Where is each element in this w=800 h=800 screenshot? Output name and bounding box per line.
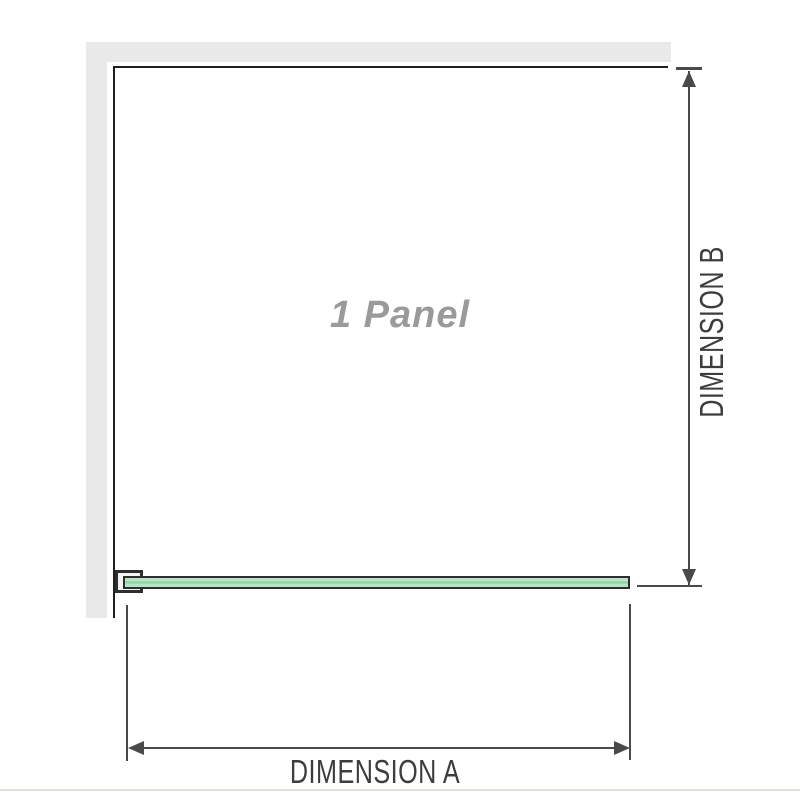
arrow-up-icon bbox=[682, 71, 696, 87]
dim-b-tick-top bbox=[676, 67, 702, 70]
arrow-down-icon bbox=[682, 569, 696, 585]
wall-top bbox=[86, 42, 671, 62]
dimension-b-label: DIMENSION B bbox=[693, 197, 729, 467]
bottom-divider bbox=[0, 789, 800, 791]
arrow-left-icon bbox=[128, 741, 144, 755]
dim-a-extension-right bbox=[629, 604, 631, 760]
dimension-a-label: DIMENSION A bbox=[240, 753, 510, 789]
wall-left bbox=[86, 42, 107, 618]
panel-count-label: 1 Panel bbox=[250, 294, 550, 342]
panel-border-left bbox=[113, 66, 115, 618]
dim-a-extension-left bbox=[126, 605, 128, 761]
dim-a-line bbox=[130, 747, 628, 749]
dimension-diagram: 1 Panel DIMENSION B DIMENSION A bbox=[0, 0, 800, 800]
glass-panel bbox=[123, 576, 630, 589]
arrow-right-icon bbox=[614, 741, 630, 755]
panel-border-top bbox=[113, 66, 668, 68]
dim-b-line bbox=[688, 71, 690, 585]
dim-b-tick-bottom bbox=[637, 585, 702, 587]
